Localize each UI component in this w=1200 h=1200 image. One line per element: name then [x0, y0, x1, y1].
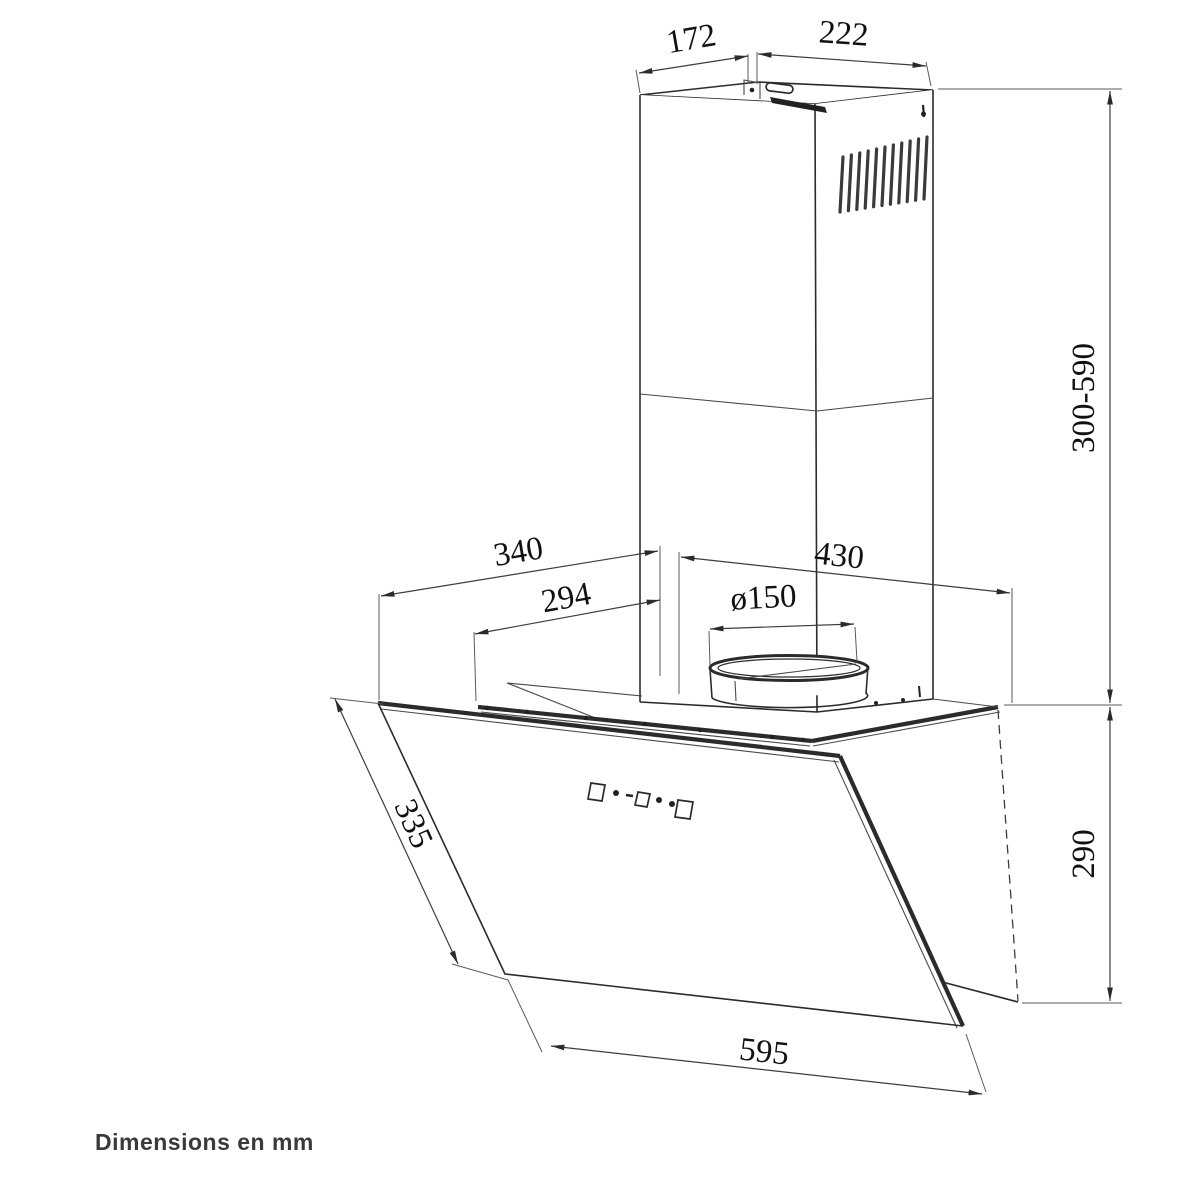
dim-label-body-height: 290 — [1066, 829, 1102, 879]
canopy-right-edge — [812, 707, 998, 741]
technical-drawing-page: 172 222 300-590 290 340 294 430 ø150 335 — [0, 0, 1200, 1200]
cooker-hood-dimension-diagram: 172 222 300-590 290 340 294 430 ø150 335 — [0, 0, 1200, 1200]
dim-label-hood-top-depth: 340 — [491, 530, 546, 574]
glass-front-panel — [378, 703, 963, 1028]
dim-label-duct-diameter: ø150 — [730, 578, 798, 617]
dim-label-chimney-top-depth: 172 — [664, 17, 719, 61]
chimney-duct-cover — [640, 80, 933, 712]
control-dash-icon — [626, 795, 633, 796]
chimney-front-left-face — [640, 95, 817, 712]
dim-label-chimney-top-width: 222 — [818, 14, 870, 53]
dim-label-chimney-height-range: 300-590 — [1066, 343, 1102, 453]
hidden-right-edge — [998, 710, 1018, 1001]
dim-label-glass-width: 595 — [738, 1031, 791, 1072]
dim-label-hood-top-width: 430 — [813, 535, 866, 576]
units-note: Dimensions en mm — [95, 1129, 314, 1155]
